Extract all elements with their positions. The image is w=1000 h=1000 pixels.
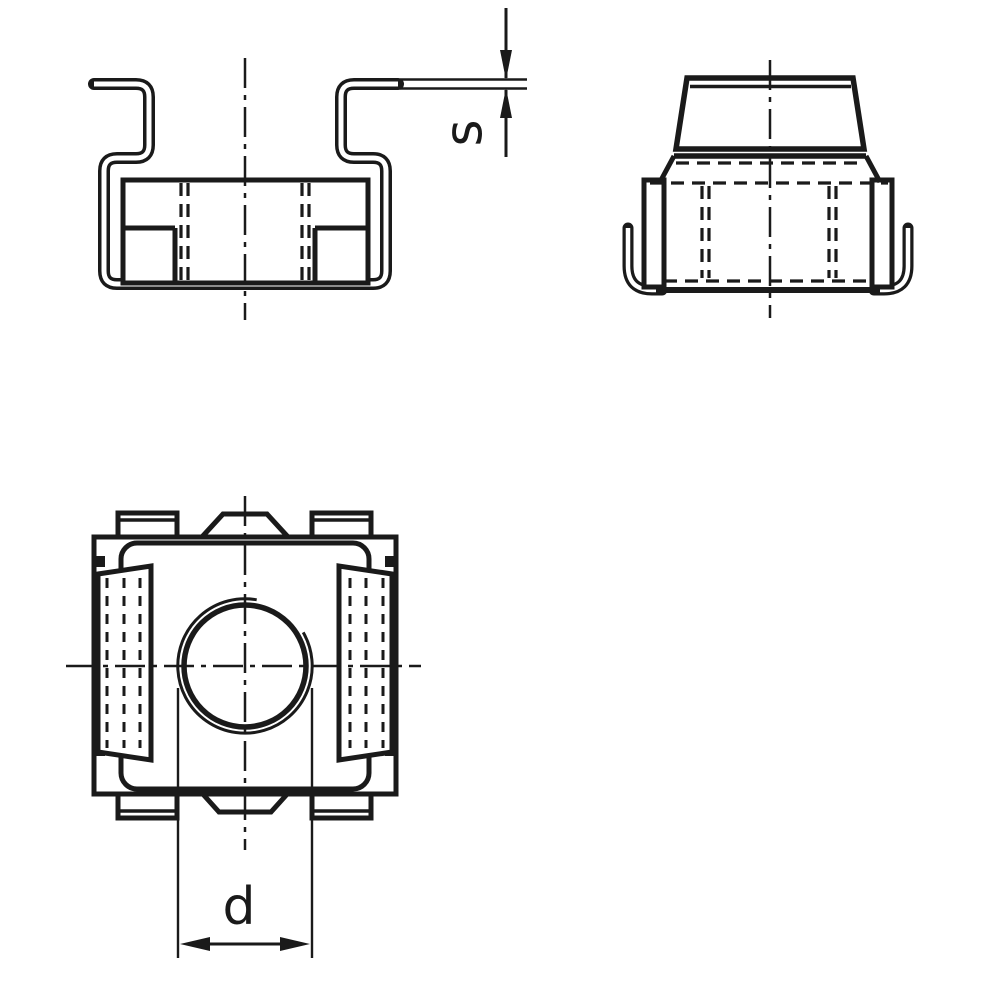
- corner-notch-top-right: [385, 556, 396, 567]
- cage-wall-right: [872, 180, 892, 287]
- label-sheet-thickness: s: [435, 119, 495, 146]
- label-thread-diameter: d: [222, 877, 255, 937]
- tab-top-left: [118, 513, 177, 538]
- drawing-canvas: s: [0, 0, 1000, 1000]
- cage-nut-drawing: s: [0, 0, 1000, 1000]
- dim-arrow-right: [280, 937, 310, 951]
- dim-arrow-down: [500, 50, 512, 80]
- corner-notch-top-left: [94, 556, 105, 567]
- side-view: [628, 60, 908, 318]
- front-view: [94, 58, 398, 320]
- dim-arrow-up: [500, 88, 512, 118]
- dimension-s: s: [400, 8, 527, 157]
- dim-arrow-left: [180, 937, 210, 951]
- cage-wall-left: [644, 180, 664, 287]
- tab-top-right: [312, 513, 371, 538]
- hidden-opening-left: [702, 186, 709, 278]
- tab-bottom-right: [312, 793, 371, 818]
- plan-view: [66, 496, 421, 850]
- tab-bottom-left: [118, 793, 177, 818]
- nut-shoulder-left: [660, 156, 674, 182]
- hidden-opening-right: [829, 186, 836, 278]
